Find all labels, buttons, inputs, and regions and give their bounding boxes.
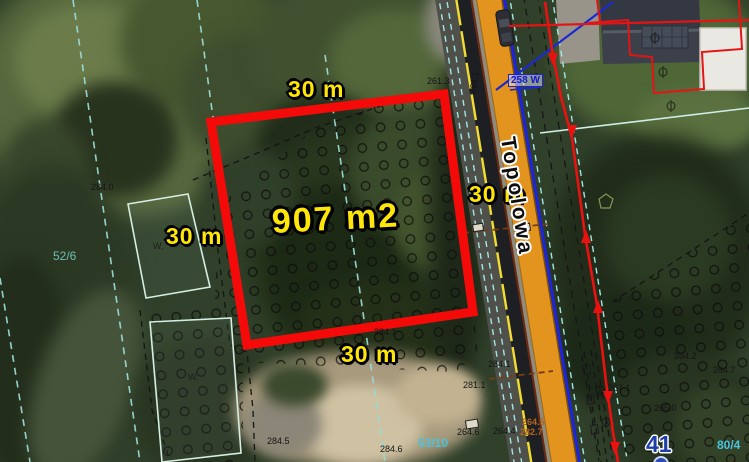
map-overlay [0, 0, 749, 462]
satellite-map-view: 284.0261.3264.1281.1284.1284.1264.6264.4… [0, 0, 749, 462]
soil-class-marker [599, 194, 613, 208]
garage-building [700, 28, 746, 90]
pole-marker [654, 457, 668, 462]
house-top-right [556, 0, 746, 90]
